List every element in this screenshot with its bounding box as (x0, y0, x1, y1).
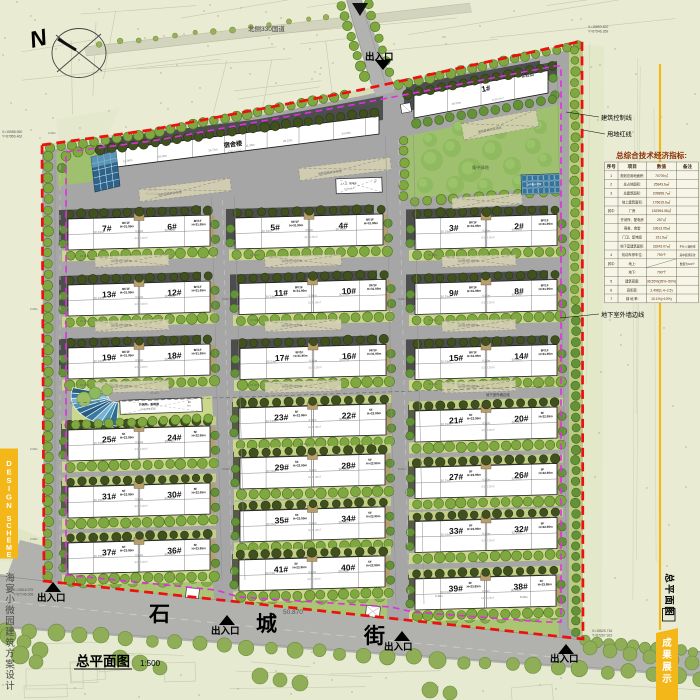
svg-text:2.00m: 2.00m (30, 537, 38, 541)
svg-text:30.24m: 30.24m (165, 294, 176, 298)
svg-text:257㎡: 257㎡ (657, 217, 667, 222)
svg-text:15.00m: 15.00m (428, 382, 438, 386)
svg-text:H=22.95m: H=22.95m (467, 416, 482, 420)
svg-text:0.95m: 0.95m (305, 228, 314, 232)
svg-text:E: E (7, 550, 12, 559)
svg-text:0.95m: 0.95m (482, 477, 491, 481)
svg-text:4: 4 (610, 253, 612, 257)
svg-text:30.24m: 30.24m (265, 295, 276, 299)
svg-text:30.24m: 30.24m (339, 467, 350, 471)
svg-text:1: 1 (610, 174, 612, 178)
svg-text:门卫、配电房: 门卫、配电房 (622, 235, 642, 240)
svg-text:H=22.95m: H=22.95m (293, 516, 308, 520)
svg-text:Y=67546.359: Y=67546.359 (588, 30, 608, 34)
svg-text:消防登高作业场地: 消防登高作业场地 (458, 259, 479, 264)
svg-text:H=31.95m: H=31.95m (467, 289, 482, 293)
svg-text:1F: 1F (188, 400, 192, 404)
svg-text:用地红线: 用地红线 (607, 131, 632, 139)
svg-text:15#: 15# (449, 353, 464, 363)
svg-text:消防登高作业场地: 消防登高作业场地 (111, 384, 132, 389)
svg-text:5: 5 (610, 280, 612, 284)
svg-text:0.95m: 0.95m (482, 589, 491, 593)
svg-text:0.95m: 0.95m (309, 293, 318, 297)
svg-text:H=31.95m: H=31.95m (364, 221, 379, 225)
svg-text:出入口: 出入口 (37, 592, 66, 604)
svg-text:H=22.95m: H=22.95m (467, 473, 482, 477)
svg-text:H=22.95m: H=22.95m (539, 471, 554, 475)
svg-text:6188.28㎡: 6188.28㎡ (482, 428, 495, 432)
svg-text:0.95m: 0.95m (482, 293, 491, 297)
svg-text:H=22.95m: H=22.95m (366, 563, 381, 567)
svg-text:6188.28㎡: 6188.28㎡ (482, 365, 495, 369)
svg-text:6188.28㎡: 6188.28㎡ (135, 365, 148, 369)
svg-text:25#: 25# (102, 434, 117, 444)
svg-text:30.24m: 30.24m (512, 531, 523, 535)
svg-text:39#: 39# (449, 583, 464, 593)
svg-text:30.24m: 30.24m (441, 295, 452, 299)
svg-text:0.95m: 0.95m (482, 228, 491, 232)
svg-text:8.00m: 8.00m (398, 297, 406, 301)
svg-text:2.00m: 2.00m (30, 307, 38, 311)
svg-text:地下室外墙边线: 地下室外墙边线 (601, 311, 644, 319)
svg-text:项目: 项目 (628, 163, 637, 170)
svg-text:开闭所、配电房: 开闭所、配电房 (621, 217, 645, 222)
svg-text:30.24m: 30.24m (511, 588, 522, 592)
svg-text:209858.7㎡: 209858.7㎡ (653, 191, 671, 196)
svg-text:H=31.95m: H=31.95m (192, 351, 207, 355)
svg-text:30.24m: 30.24m (94, 441, 105, 445)
svg-text:30.24m: 30.24m (512, 228, 523, 232)
svg-text:2.00m: 2.00m (48, 131, 56, 135)
svg-text:微: 微 (5, 604, 15, 616)
svg-text:30.24m: 30.24m (339, 520, 350, 524)
svg-text:H=22.95m: H=22.95m (192, 433, 207, 437)
svg-text:H=23.85m: H=23.85m (538, 582, 553, 586)
svg-text:序号: 序号 (607, 163, 617, 170)
svg-text:8.00m: 8.00m (398, 467, 406, 471)
svg-text:计: 计 (5, 680, 15, 692)
svg-text:30.24m: 30.24m (512, 477, 523, 481)
svg-text:0.95m: 0.95m (308, 570, 317, 574)
svg-text:30.24m: 30.24m (512, 293, 523, 297)
svg-text:石: 石 (148, 603, 170, 626)
svg-text:6188.28㎡: 6188.28㎡ (482, 538, 495, 542)
svg-text:设: 设 (5, 670, 15, 681)
svg-text:0.95m: 0.95m (482, 421, 491, 425)
svg-text:H=31.95m: H=31.95m (293, 354, 308, 358)
svg-text:0.95m: 0.95m (135, 295, 144, 299)
svg-text:总: 总 (663, 573, 675, 583)
svg-text:30.24m: 30.24m (165, 496, 176, 500)
svg-text:总平面图: 总平面图 (76, 653, 130, 669)
svg-text:15.00m: 15.00m (428, 253, 438, 257)
svg-text:0.95m: 0.95m (482, 358, 491, 362)
svg-text:30.24m: 30.24m (441, 533, 452, 537)
svg-text:地下:: 地下: (628, 270, 636, 275)
svg-text:地下室外墙边线: 地下室外墙边线 (486, 392, 510, 397)
svg-text:30.24m: 30.24m (266, 360, 277, 364)
svg-text:30.24m: 30.24m (336, 227, 347, 231)
svg-text:H=31.95m: H=31.95m (539, 352, 554, 356)
svg-text:备注: 备注 (682, 163, 693, 170)
svg-text:数值: 数值 (657, 163, 667, 170)
svg-text:成: 成 (662, 637, 672, 649)
svg-text:8.00m: 8.00m (222, 467, 230, 471)
svg-text:H=22.95m: H=22.95m (366, 461, 381, 465)
svg-text:H=22.95m: H=22.95m (293, 463, 308, 467)
svg-text:X=15853.820: X=15853.820 (588, 25, 608, 29)
svg-text:消防登高作业场地: 消防登高作业场地 (281, 384, 302, 389)
svg-text:绿 地 率:: 绿 地 率: (626, 296, 639, 301)
svg-text:H=22.95m: H=22.95m (366, 514, 381, 518)
svg-text:11#: 11# (274, 288, 288, 298)
svg-text:3: 3 (610, 192, 612, 196)
svg-text:30.24m: 30.24m (441, 422, 452, 426)
svg-text:30.24m: 30.24m (441, 479, 452, 483)
svg-text:30.24m: 30.24m (512, 420, 523, 424)
svg-text:0.95m: 0.95m (309, 418, 318, 422)
svg-text:0.95m: 0.95m (309, 468, 318, 472)
svg-text:H=31.95m: H=31.95m (192, 222, 207, 226)
svg-text:50.870: 50.870 (283, 609, 303, 616)
svg-text:6188.28㎡: 6188.28㎡ (135, 447, 148, 451)
svg-text:H=31.95m: H=31.95m (539, 222, 554, 226)
svg-text:7: 7 (610, 297, 612, 301)
svg-text:30.24m: 30.24m (94, 296, 105, 300)
svg-text:H=22.95m: H=22.95m (367, 411, 382, 415)
svg-text:H=22.95m: H=22.95m (120, 435, 135, 439)
svg-text:2.40m: 2.40m (435, 594, 443, 598)
svg-text:果: 果 (661, 650, 672, 661)
svg-text:30.24m: 30.24m (165, 439, 176, 443)
svg-text:消防登高作业场地: 消防登高作业场地 (111, 323, 132, 328)
svg-text:示: 示 (662, 674, 672, 685)
svg-text:H=31.95m: H=31.95m (289, 223, 304, 227)
svg-text:70709㎡: 70709㎡ (655, 173, 668, 178)
svg-text:25843.6㎡: 25843.6㎡ (654, 182, 670, 187)
svg-text:15.00m: 15.00m (250, 253, 260, 257)
svg-text:0.95m: 0.95m (309, 521, 318, 525)
svg-text:30.24m: 30.24m (265, 571, 276, 575)
svg-text:6188.28㎡: 6188.28㎡ (135, 302, 148, 306)
svg-text:6188.28㎡: 6188.28㎡ (308, 577, 321, 581)
svg-text:H=31.95m: H=31.95m (192, 288, 207, 292)
svg-text:建筑密度:: 建筑密度: (625, 279, 639, 284)
svg-text:1:500: 1:500 (140, 659, 161, 668)
svg-text:30.24m: 30.24m (265, 419, 276, 423)
svg-text:35#: 35# (275, 515, 290, 525)
svg-text:厂房: 厂房 (629, 208, 636, 213)
svg-text:30.24m: 30.24m (94, 498, 105, 502)
svg-text:H=31.95m: H=31.95m (367, 352, 382, 356)
svg-text:H=22.95m: H=22.95m (467, 527, 482, 531)
svg-text:30.24m: 30.24m (339, 357, 350, 361)
svg-text:X=15818.975: X=15818.975 (13, 588, 33, 592)
svg-text:6: 6 (610, 288, 612, 292)
svg-text:消防登高作业场地: 消防登高作业场地 (281, 323, 302, 328)
svg-text:方: 方 (5, 648, 15, 660)
svg-text:展: 展 (662, 662, 672, 673)
svg-text:176615.6㎡: 176615.6㎡ (653, 199, 671, 204)
svg-text:0.95m: 0.95m (482, 531, 491, 535)
svg-text:H=22.95m: H=22.95m (539, 525, 554, 529)
svg-text:8.00m: 8.00m (222, 297, 230, 301)
svg-text:15.00m: 15.00m (428, 318, 438, 322)
svg-text:出入口: 出入口 (365, 51, 394, 63)
svg-text:6188.28㎡: 6188.28㎡ (482, 235, 495, 239)
svg-text:案: 案 (5, 658, 15, 670)
svg-text:不计入容积率: 不计入容积率 (679, 244, 695, 248)
svg-text:开闭所、配电房: 开闭所、配电房 (139, 401, 160, 407)
svg-text:上人口、配电房: 上人口、配电房 (340, 181, 357, 186)
svg-text:平: 平 (663, 584, 674, 594)
svg-text:H=31.95m: H=31.95m (539, 287, 554, 291)
svg-text:6188.28㎡: 6188.28㎡ (308, 475, 321, 479)
svg-text:总建筑面积:: 总建筑面积: (623, 191, 640, 196)
svg-text:17#: 17# (275, 353, 290, 363)
svg-text:集中绿地: 集中绿地 (472, 164, 490, 171)
svg-text:15.00m: 15.00m (80, 319, 90, 323)
svg-text:0.95m: 0.95m (135, 497, 144, 501)
svg-text:41#: 41# (274, 564, 289, 574)
svg-text:6188.28㎡: 6188.28㎡ (308, 425, 321, 429)
svg-text:总占地面积:: 总占地面积: (623, 182, 640, 187)
svg-text:0.95m: 0.95m (135, 358, 144, 362)
svg-text:6188.28㎡: 6188.28㎡ (135, 236, 148, 240)
svg-text:其中装卸货位: 其中装卸货位 (679, 253, 695, 257)
svg-text:30.24m: 30.24m (339, 417, 350, 421)
svg-text:数量为100个: 数量为100个 (680, 262, 696, 266)
svg-text:H=31.95m: H=31.95m (293, 289, 308, 293)
svg-text:0.95m: 0.95m (309, 358, 318, 362)
svg-text:出入口: 出入口 (211, 625, 240, 637)
svg-text:30.24m: 30.24m (266, 522, 277, 526)
svg-text:0.95m: 0.95m (135, 553, 144, 557)
svg-text:33243.07㎡: 33243.07㎡ (653, 243, 671, 248)
svg-text:海: 海 (5, 572, 15, 584)
svg-text:X=15625.716: X=15625.716 (592, 629, 612, 633)
svg-text:6188.28㎡: 6188.28㎡ (482, 300, 495, 304)
svg-text:33#: 33# (449, 526, 464, 536)
svg-text:6188.28㎡: 6188.28㎡ (308, 300, 321, 304)
svg-text:152594.08㎡: 152594.08㎡ (652, 208, 672, 213)
svg-text:H=22.95m: H=22.95m (120, 492, 135, 496)
svg-text:H=31.95m: H=31.95m (467, 354, 482, 358)
svg-text:H=31.95m: H=31.95m (467, 224, 482, 228)
svg-text:H=23.85m: H=23.85m (192, 546, 207, 550)
svg-text:H=22.95m: H=22.95m (192, 490, 207, 494)
svg-text:消防登高作业场地: 消防登高作业场地 (458, 323, 479, 328)
svg-text:H=23.85m: H=23.85m (467, 584, 482, 588)
svg-text:出入口: 出入口 (384, 641, 413, 653)
svg-text:30.24m: 30.24m (262, 229, 273, 233)
svg-text:H=22.95m: H=22.95m (292, 565, 307, 569)
svg-text:29#: 29# (275, 462, 290, 472)
svg-text:30.24m: 30.24m (441, 230, 452, 234)
svg-text:60.64m: 60.64m (300, 546, 310, 550)
svg-text:15.00m: 15.00m (250, 318, 260, 322)
svg-text:街: 街 (363, 624, 385, 648)
svg-text:地上建筑面积:: 地上建筑面积: (622, 199, 643, 204)
svg-text:6188.28㎡: 6188.28㎡ (482, 484, 495, 488)
svg-text:37#: 37# (102, 547, 117, 557)
svg-text:H=31.95m: H=31.95m (367, 287, 382, 291)
svg-text:2.498(1.4~2.5): 2.498(1.4~2.5) (650, 288, 672, 292)
svg-text:规划总用地面积:: 规划总用地面积: (620, 173, 644, 178)
svg-text:消防登高作业场地: 消防登高作业场地 (281, 259, 302, 264)
svg-text:27#: 27# (449, 472, 464, 482)
svg-text:北侧330国道: 北侧330国道 (248, 24, 285, 33)
svg-text:其中: 其中 (608, 208, 615, 213)
svg-text:151.5㎡: 151.5㎡ (656, 235, 668, 240)
svg-text:6188.28㎡: 6188.28㎡ (135, 560, 148, 564)
svg-text:6.00m: 6.00m (520, 595, 528, 599)
svg-text:6188.28㎡: 6188.28㎡ (308, 528, 321, 532)
svg-text:总综合技术经济指标:: 总综合技术经济指标: (616, 150, 687, 160)
svg-text:消防登高作业场地: 消防登高作业场地 (458, 384, 479, 389)
svg-text:2.00m: 2.00m (30, 447, 38, 451)
svg-text:21#: 21# (449, 415, 464, 425)
svg-text:X=15988.550: X=15988.550 (2, 130, 22, 134)
svg-text:5m: 5m (187, 403, 191, 407)
svg-text:30.24m: 30.24m (165, 357, 176, 361)
svg-text:34.20m: 34.20m (150, 391, 160, 395)
svg-text:面: 面 (663, 595, 674, 605)
svg-text:其中: 其中 (608, 261, 615, 266)
svg-text:23#: 23# (274, 412, 289, 422)
svg-text:30.24m: 30.24m (94, 359, 105, 363)
svg-text:6188.28㎡: 6188.28㎡ (481, 596, 494, 600)
svg-text:建: 建 (5, 626, 15, 638)
svg-text:建筑控制线: 建筑控制线 (601, 114, 632, 122)
svg-text:机动车停车位:: 机动车停车位: (622, 252, 643, 257)
svg-text:19#: 19# (102, 352, 117, 362)
svg-text:城: 城 (256, 612, 277, 636)
svg-text:出入口: 出入口 (550, 653, 579, 665)
svg-text:23613.05㎡: 23613.05㎡ (653, 226, 671, 231)
svg-text:H=31.95m: H=31.95m (120, 353, 135, 357)
svg-text:H=31.95m: H=31.95m (120, 290, 135, 294)
svg-text:30.24m: 30.24m (512, 358, 523, 362)
svg-text:地上:: 地上: (628, 261, 636, 266)
svg-text:30.24m: 30.24m (266, 469, 277, 473)
svg-text:30.24m: 30.24m (339, 292, 350, 296)
svg-text:15.00m: 15.00m (80, 254, 90, 258)
svg-text:H=23.85m: H=23.85m (120, 548, 135, 552)
svg-text:图: 图 (663, 606, 674, 616)
svg-text:30.24m: 30.24m (165, 552, 176, 556)
svg-text:消防登高作业场地: 消防登高作业场地 (111, 259, 132, 264)
svg-text:10.1%(>10%): 10.1%(>10%) (651, 297, 672, 301)
svg-text:(沪电话电机房): (沪电话电机房) (140, 407, 156, 412)
svg-text:H=22.95m: H=22.95m (539, 414, 554, 418)
svg-text:5#: 5# (270, 222, 280, 232)
svg-text:30.24m: 30.24m (165, 228, 176, 232)
svg-text:N: N (6, 501, 11, 510)
svg-text:筑: 筑 (5, 637, 15, 649)
svg-text:30.24m: 30.24m (94, 554, 105, 558)
svg-text:小: 小 (5, 595, 15, 606)
svg-text:太阳能光伏板: 太阳能光伏板 (527, 182, 542, 187)
svg-text:园: 园 (5, 616, 15, 627)
svg-text:790个: 790个 (657, 252, 667, 257)
svg-text:30.24m: 30.24m (338, 569, 349, 573)
svg-text:60.64m: 60.64m (475, 560, 485, 564)
svg-text:容积率:: 容积率: (627, 287, 638, 292)
svg-text:13#: 13# (102, 289, 117, 299)
svg-text:0.95m: 0.95m (135, 229, 144, 233)
svg-text:0.95m: 0.95m (135, 440, 144, 444)
svg-text:6188.28㎡: 6188.28㎡ (305, 235, 318, 239)
svg-text:Y=67267.922: Y=67267.922 (592, 634, 612, 638)
svg-text:H=22.95m: H=22.95m (293, 413, 308, 417)
svg-text:15.00m: 15.00m (250, 383, 260, 387)
svg-text:宿舍、食堂: 宿舍、食堂 (624, 226, 641, 231)
svg-text:36.55%(35%~50%): 36.55%(35%~50%) (647, 280, 676, 284)
svg-text:6188.28㎡: 6188.28㎡ (309, 365, 322, 369)
svg-text:宴: 宴 (5, 583, 15, 595)
svg-text:6188.28㎡: 6188.28㎡ (135, 504, 148, 508)
svg-text:790个: 790个 (657, 270, 667, 275)
svg-text:30.24m: 30.24m (441, 360, 452, 364)
svg-text:60.64m: 60.64m (300, 442, 310, 446)
svg-text:31#: 31# (102, 491, 117, 501)
svg-text:2: 2 (610, 183, 612, 187)
svg-text:H=31.95m: H=31.95m (120, 224, 135, 228)
svg-text:30.24m: 30.24m (94, 230, 105, 234)
svg-text:Y=67350.462: Y=67350.462 (2, 135, 22, 139)
svg-text:地下室建筑面积:: 地下室建筑面积: (620, 243, 644, 248)
svg-text:Y=67146.658: Y=67146.658 (13, 593, 33, 597)
svg-text:15.00m: 15.00m (80, 383, 90, 387)
